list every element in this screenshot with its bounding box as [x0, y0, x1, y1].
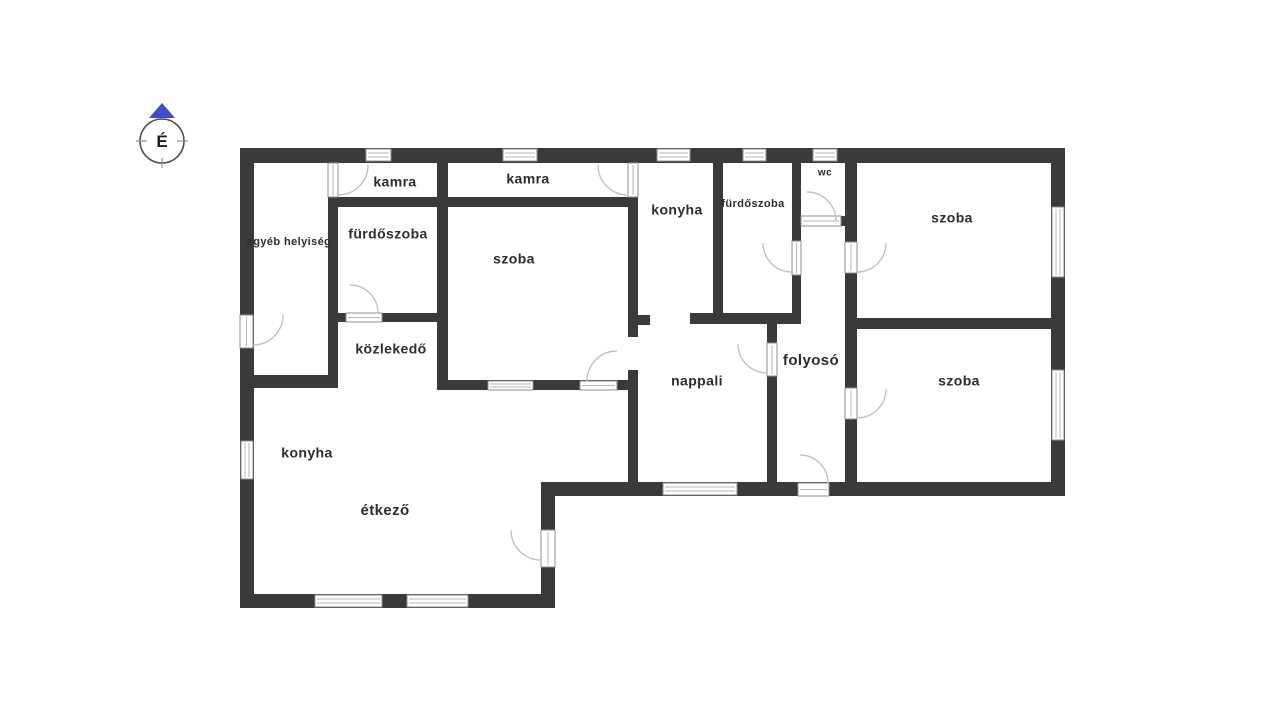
door — [738, 343, 777, 376]
room-label: kamra — [373, 174, 416, 190]
door-leaf — [541, 530, 555, 567]
wall — [767, 376, 777, 496]
door-leaf — [845, 242, 857, 273]
floor-plan-svg: É kamrakamrafürdőszobaegyéb helyiségszob… — [0, 0, 1280, 714]
window — [503, 149, 537, 161]
window — [241, 441, 253, 479]
door — [511, 530, 555, 567]
window — [407, 595, 468, 607]
room-label: fürdőszoba — [348, 226, 427, 242]
door — [328, 163, 368, 197]
wall — [437, 163, 448, 388]
door — [763, 241, 801, 275]
door-swing-arc — [350, 285, 378, 313]
wall — [845, 273, 857, 388]
door — [845, 388, 886, 419]
compass-label: É — [156, 132, 167, 151]
window — [1052, 207, 1064, 277]
door — [798, 455, 829, 496]
window — [315, 595, 382, 607]
room-label: kamra — [506, 171, 549, 187]
door-leaf — [845, 388, 857, 419]
door-swing-arc — [587, 351, 617, 381]
door-swing-arc — [511, 530, 541, 560]
door — [801, 192, 841, 226]
door-leaf — [346, 313, 382, 322]
wall — [792, 163, 801, 241]
room-label: szoba — [931, 210, 973, 226]
door-swing-arc — [800, 455, 828, 483]
window — [366, 149, 391, 161]
door-swing-arc — [857, 389, 886, 418]
door-leaf — [801, 216, 841, 226]
north-arrow-icon — [149, 103, 175, 118]
room-labels-layer: kamrakamrafürdőszobaegyéb helyiségszobak… — [247, 168, 980, 519]
room-label: egyéb helyiség — [247, 236, 331, 248]
room-label: konyha — [651, 202, 702, 218]
door-leaf — [798, 483, 829, 496]
door-leaf — [628, 163, 638, 197]
window — [813, 149, 837, 161]
wall — [690, 313, 801, 324]
room-label: szoba — [493, 251, 535, 267]
door-leaf — [240, 315, 253, 348]
door-swing-arc — [338, 165, 368, 195]
door-leaf — [328, 163, 338, 197]
door — [346, 285, 382, 322]
window — [488, 381, 533, 390]
compass: É — [136, 103, 188, 168]
room-label: konyha — [281, 445, 332, 461]
room-label: nappali — [671, 373, 723, 389]
wall — [240, 375, 338, 388]
room-label: szoba — [938, 373, 980, 389]
wall — [845, 318, 1065, 329]
wall — [328, 197, 638, 207]
wall — [240, 594, 555, 608]
door-swing-arc — [598, 165, 628, 195]
door — [240, 315, 283, 348]
door-leaf — [767, 343, 777, 376]
wall — [240, 148, 1065, 163]
wall — [328, 197, 338, 388]
wall — [845, 418, 857, 496]
wall — [845, 163, 857, 242]
door — [845, 242, 886, 273]
room-label: folyosó — [783, 352, 839, 369]
door-swing-arc — [763, 243, 792, 272]
door-swing-arc — [253, 315, 283, 345]
wall — [628, 315, 650, 325]
door-swing-arc — [857, 243, 886, 272]
window — [743, 149, 766, 161]
door-swing-arc — [738, 344, 767, 373]
door-leaf — [792, 241, 801, 275]
room-label: közlekedő — [355, 341, 426, 357]
door — [598, 163, 638, 197]
room-label: fürdőszoba — [721, 198, 785, 210]
door-leaf — [580, 381, 617, 390]
room-label: étkező — [360, 502, 409, 519]
window — [657, 149, 690, 161]
floor-plan-canvas: É kamrakamrafürdőszobaegyéb helyiségszob… — [0, 0, 1280, 714]
room-label: wc — [817, 168, 832, 179]
window — [1052, 370, 1064, 440]
window — [663, 483, 737, 495]
door — [580, 351, 617, 390]
wall — [713, 163, 723, 324]
